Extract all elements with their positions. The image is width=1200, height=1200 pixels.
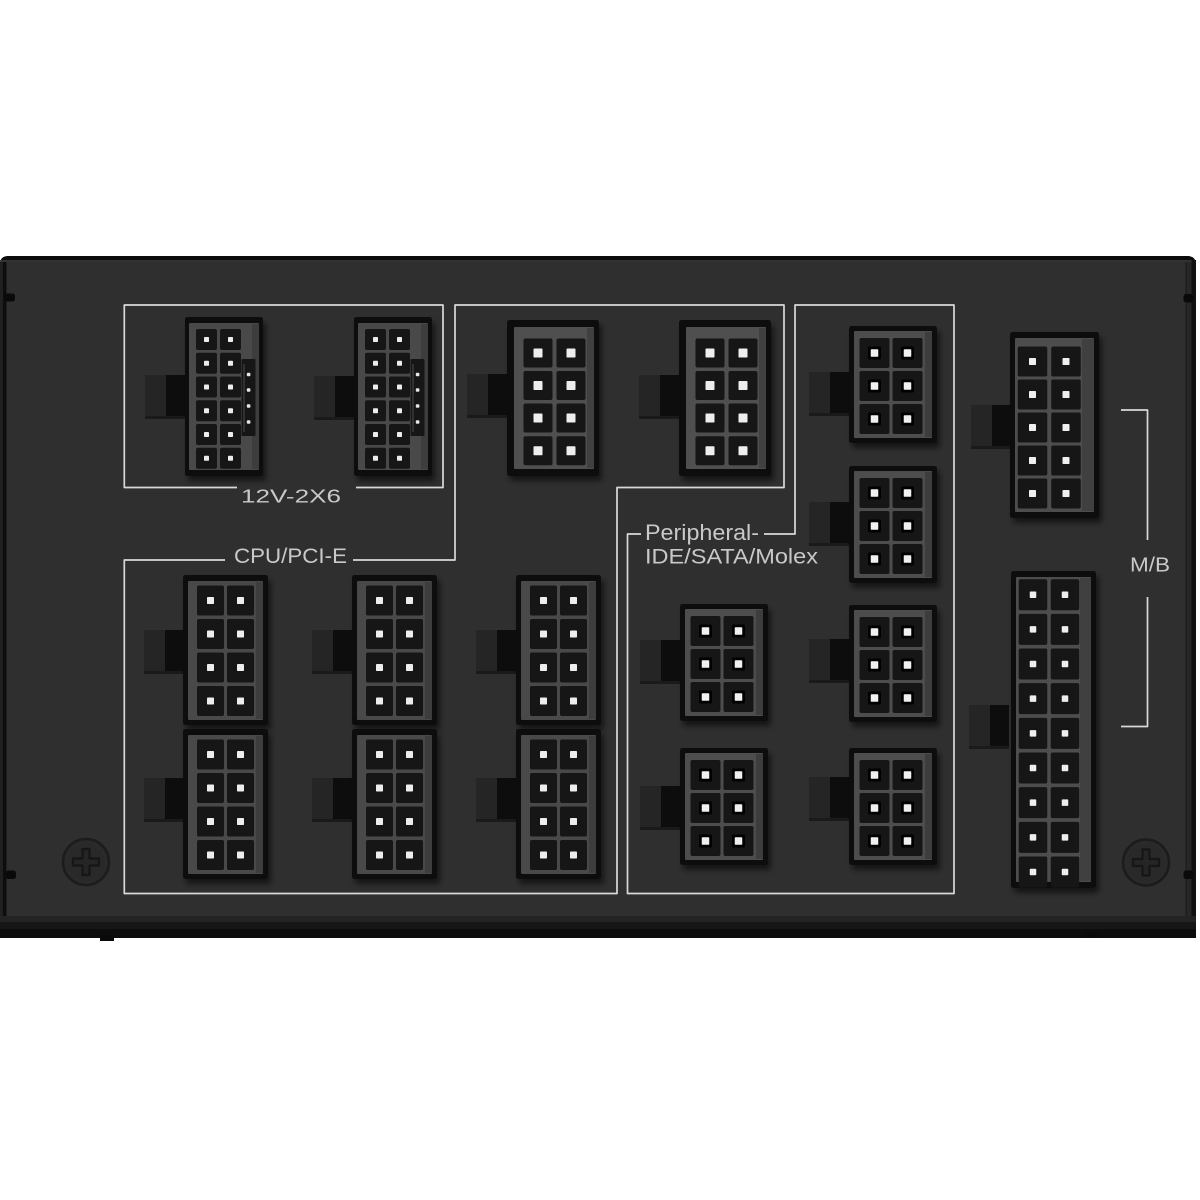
svg-text:IDE/SATA/Molex: IDE/SATA/Molex bbox=[645, 546, 819, 569]
svg-text:Peripheral-: Peripheral- bbox=[645, 520, 759, 545]
svg-text:12V-2X6: 12V-2X6 bbox=[241, 487, 341, 507]
svg-text:CPU/PCI-E: CPU/PCI-E bbox=[234, 544, 347, 568]
svg-text:M/B: M/B bbox=[1130, 555, 1170, 577]
